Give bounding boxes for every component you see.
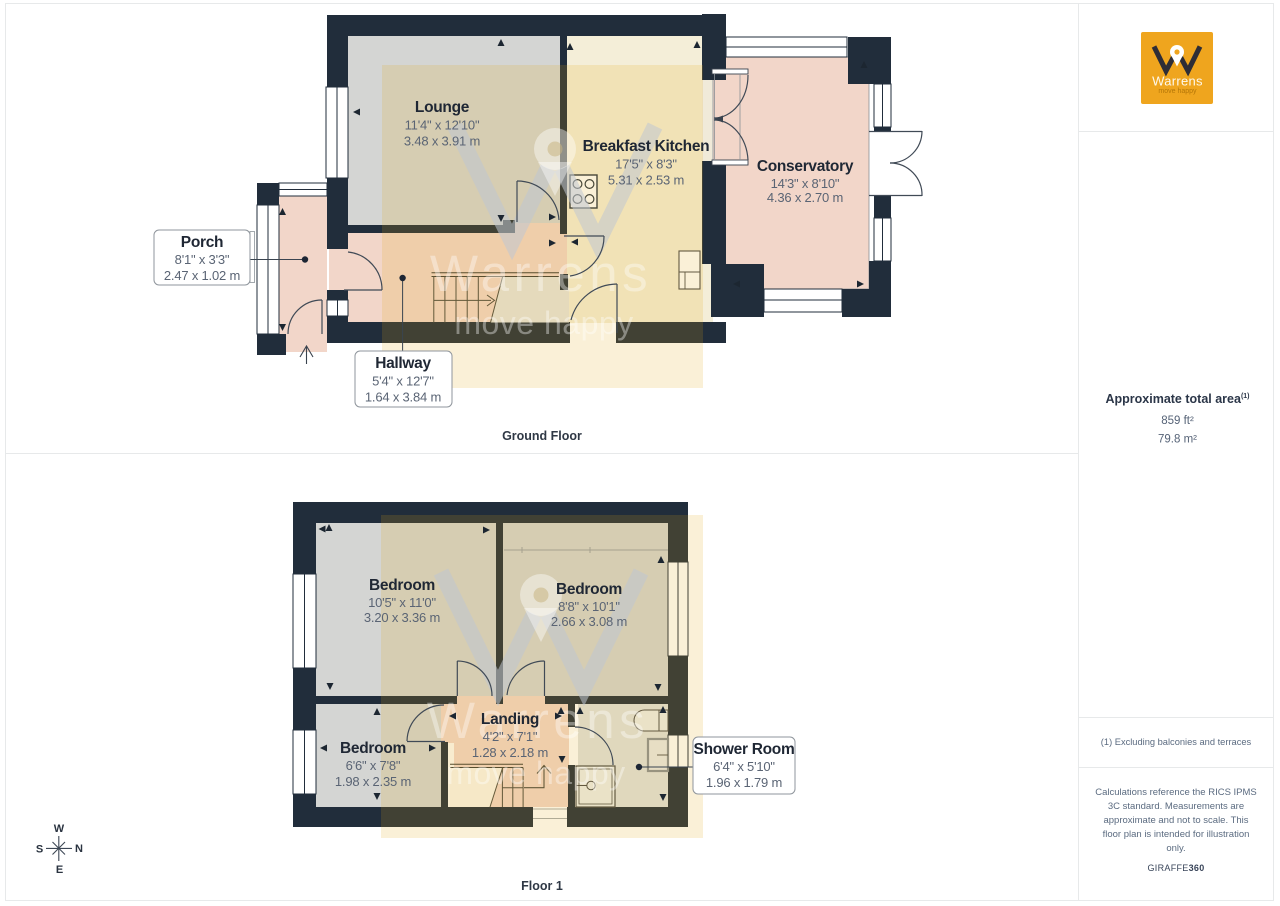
svg-text:14'3" x 8'10": 14'3" x 8'10" xyxy=(771,176,840,191)
svg-text:5'4" x 12'7": 5'4" x 12'7" xyxy=(372,374,434,389)
svg-text:Floor 1: Floor 1 xyxy=(521,879,563,893)
svg-text:approximate and not to scale.: approximate and not to scale. This xyxy=(1103,815,1248,826)
svg-text:3.48 x 3.91 m: 3.48 x 3.91 m xyxy=(404,134,480,149)
svg-text:Shower Room: Shower Room xyxy=(694,741,795,758)
svg-text:10'5" x 11'0": 10'5" x 11'0" xyxy=(368,595,436,610)
svg-text:floor plan is intended for ill: floor plan is intended for illustration xyxy=(1103,829,1250,840)
svg-text:4.36 x 2.70 m: 4.36 x 2.70 m xyxy=(767,190,843,205)
svg-text:79.8 m²: 79.8 m² xyxy=(1158,434,1197,446)
svg-text:1.64 x 3.84 m: 1.64 x 3.84 m xyxy=(365,390,441,405)
svg-text:6'4" x 5'10": 6'4" x 5'10" xyxy=(713,759,775,774)
svg-text:3.20 x 3.36 m: 3.20 x 3.36 m xyxy=(364,610,440,625)
svg-text:W: W xyxy=(54,823,65,835)
svg-text:1.98 x 2.35 m: 1.98 x 2.35 m xyxy=(335,774,411,789)
svg-text:Conservatory: Conservatory xyxy=(757,158,854,175)
svg-text:Ground Floor: Ground Floor xyxy=(502,429,582,443)
svg-text:Breakfast Kitchen: Breakfast Kitchen xyxy=(583,138,710,155)
svg-text:N: N xyxy=(75,843,83,855)
svg-text:Warrens: Warrens xyxy=(430,245,652,302)
svg-text:2.66 x 3.08 m: 2.66 x 3.08 m xyxy=(551,614,627,629)
svg-text:Lounge: Lounge xyxy=(415,99,470,116)
svg-text:Porch: Porch xyxy=(181,234,223,251)
svg-text:E: E xyxy=(56,864,63,876)
svg-text:GIRAFFE360: GIRAFFE360 xyxy=(1147,863,1204,873)
svg-text:17'5" x 8'3": 17'5" x 8'3" xyxy=(615,157,677,172)
svg-text:8'1" x 3'3": 8'1" x 3'3" xyxy=(175,252,230,267)
svg-text:move happy: move happy xyxy=(446,755,625,791)
svg-text:Bedroom: Bedroom xyxy=(340,740,406,757)
svg-text:3C standard. Measurements are: 3C standard. Measurements are xyxy=(1108,801,1244,812)
svg-text:859 ft²: 859 ft² xyxy=(1161,415,1194,427)
svg-text:5.31 x 2.53 m: 5.31 x 2.53 m xyxy=(608,173,684,188)
svg-text:4'2" x 7'1": 4'2" x 7'1" xyxy=(483,729,538,744)
svg-text:Calculations reference the RIC: Calculations reference the RICS IPMS xyxy=(1095,787,1257,798)
svg-text:move happy: move happy xyxy=(1158,88,1197,95)
svg-text:Bedroom: Bedroom xyxy=(556,581,622,598)
svg-text:move happy: move happy xyxy=(454,305,633,341)
svg-text:S: S xyxy=(36,844,43,856)
svg-text:1.96 x 1.79 m: 1.96 x 1.79 m xyxy=(706,775,782,790)
svg-text:8'8" x 10'1": 8'8" x 10'1" xyxy=(558,599,620,614)
svg-text:1.28 x 2.18 m: 1.28 x 2.18 m xyxy=(472,745,548,760)
svg-text:Approximate total area(1): Approximate total area(1) xyxy=(1105,392,1249,406)
svg-text:2.47 x 1.02 m: 2.47 x 1.02 m xyxy=(164,268,240,283)
svg-text:6'6" x 7'8": 6'6" x 7'8" xyxy=(346,758,401,773)
svg-text:11'4" x 12'10": 11'4" x 12'10" xyxy=(405,118,480,133)
svg-text:Landing: Landing xyxy=(481,711,539,728)
svg-text:Bedroom: Bedroom xyxy=(369,577,435,594)
svg-text:(1) Excluding balconies and te: (1) Excluding balconies and terraces xyxy=(1101,737,1252,747)
svg-text:Hallway: Hallway xyxy=(375,355,431,372)
svg-text:only.: only. xyxy=(1166,843,1185,854)
svg-text:Warrens: Warrens xyxy=(1152,74,1203,89)
